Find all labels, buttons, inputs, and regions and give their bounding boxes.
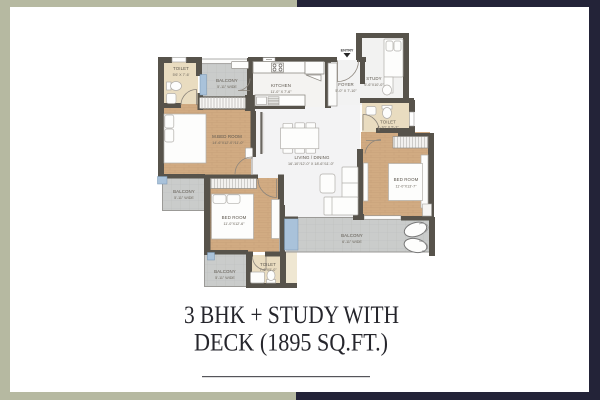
svg-text:BALCONY: BALCONY [173, 189, 195, 194]
svg-text:TOILET: TOILET [173, 66, 189, 71]
svg-text:16'-10"/12'-0" X 18'-6"/11'-0": 16'-10"/12'-0" X 18'-6"/11'-0" [288, 162, 335, 166]
svg-text:TOILET: TOILET [380, 120, 396, 125]
svg-text:BED ROOM: BED ROOM [222, 215, 247, 220]
svg-text:FOYER: FOYER [338, 82, 354, 87]
svg-text:11'-0"X13'-7": 11'-0"X13'-7" [396, 185, 418, 189]
svg-text:TOILET: TOILET [260, 262, 276, 267]
svg-text:DECK (1895 SQ.FT.): DECK (1895 SQ.FT.) [194, 330, 388, 357]
svg-text:KITCHEN: KITCHEN [271, 83, 291, 88]
svg-text:BALCONY: BALCONY [216, 78, 238, 83]
svg-text:5'-11" WIDE: 5'-11" WIDE [217, 85, 237, 89]
svg-text:7'-6"X5'-0": 7'-6"X5'-0" [259, 268, 277, 272]
svg-text:5'-0" X 7'-10": 5'-0" X 7'-10" [335, 89, 357, 93]
svg-text:4'-10" X 5'-3": 4'-10" X 5'-3" [377, 126, 399, 130]
svg-text:BALCONY: BALCONY [214, 269, 236, 274]
svg-text:BALCONY: BALCONY [341, 233, 363, 238]
svg-text:LIVING / DINING: LIVING / DINING [295, 155, 330, 160]
svg-text:M.BED ROOM: M.BED ROOM [212, 134, 242, 139]
svg-text:11'-0" X 7'-6": 11'-0" X 7'-6" [271, 90, 293, 94]
svg-text:BED ROOM: BED ROOM [394, 177, 419, 182]
svg-text:STUDY: STUDY [366, 76, 381, 81]
svg-text:5'-11" WIDE: 5'-11" WIDE [174, 196, 194, 200]
svg-text:5'-11" WIDE: 5'-11" WIDE [215, 276, 235, 280]
svg-text:6'-11" WIDE: 6'-11" WIDE [342, 240, 362, 244]
svg-text:11'-0"X12'-6": 11'-0"X12'-6" [224, 222, 246, 226]
svg-text:14'-6"X12'-0"/11'-0": 14'-6"X12'-0"/11'-0" [212, 141, 244, 145]
svg-text:3 BHK + STUDY WITH: 3 BHK + STUDY WITH [184, 302, 399, 329]
svg-text:ENTRY: ENTRY [341, 49, 354, 53]
svg-text:5'6' X 7'-6': 5'6' X 7'-6' [173, 73, 190, 77]
svg-text:6'-6"X10'-0": 6'-6"X10'-0" [364, 83, 384, 87]
